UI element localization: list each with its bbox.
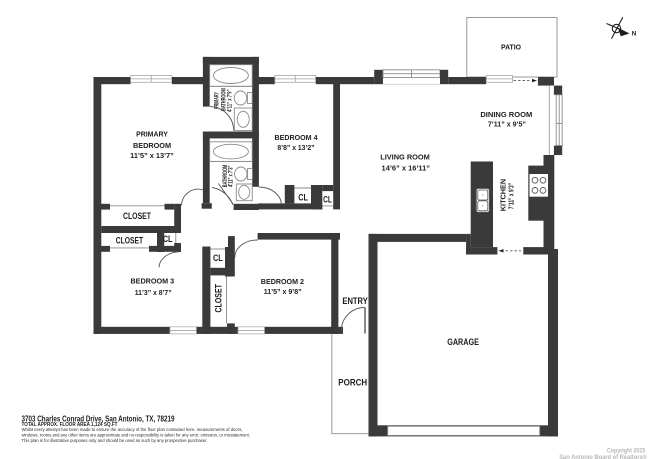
svg-text:BEDROOM 4: BEDROOM 4 xyxy=(274,133,318,142)
svg-text:windows, rooms and any other i: windows, rooms and any other items are a… xyxy=(22,433,251,438)
svg-text:This plan is for illustrative: This plan is for illustrative purposes o… xyxy=(22,438,208,443)
svg-text:PRIMARY: PRIMARY xyxy=(136,129,168,138)
svg-text:DINING ROOM: DINING ROOM xyxy=(480,110,532,119)
svg-text:BEDROOM: BEDROOM xyxy=(133,141,171,150)
svg-text:CLOSET: CLOSET xyxy=(123,211,151,221)
svg-text:11’3” x 8’7”: 11’3” x 8’7” xyxy=(135,288,172,297)
svg-text:PATIO: PATIO xyxy=(501,42,521,51)
svg-text:CLOSET: CLOSET xyxy=(116,235,144,245)
svg-text:San Antonio Board of Realtors®: San Antonio Board of Realtors® xyxy=(559,453,647,459)
svg-text:CL: CL xyxy=(298,193,308,203)
svg-text:11’5” x 9’8”: 11’5” x 9’8” xyxy=(264,287,302,296)
svg-text:Whilst every attempt has been: Whilst every attempt has been made to en… xyxy=(22,427,243,432)
svg-text:GARAGE: GARAGE xyxy=(447,337,479,348)
svg-text:14’6” x 16’11”: 14’6” x 16’11” xyxy=(382,164,431,173)
svg-text:CL: CL xyxy=(213,253,223,263)
svg-text:BEDROOM 3: BEDROOM 3 xyxy=(130,277,174,286)
svg-text:7’11” x 9’5”: 7’11” x 9’5” xyxy=(488,120,526,129)
svg-text:7’11” x 9’3”: 7’11” x 9’3” xyxy=(507,183,516,210)
svg-text:ENTRY: ENTRY xyxy=(342,296,368,307)
svg-text:N: N xyxy=(632,31,637,38)
svg-text:CL: CL xyxy=(163,234,173,244)
svg-text:4’11” x 7’9”: 4’11” x 7’9” xyxy=(226,89,233,112)
svg-text:BEDROOM 2: BEDROOM 2 xyxy=(261,277,304,286)
svg-text:4’11” x 7’3”: 4’11” x 7’3” xyxy=(228,166,235,188)
svg-text:8’8” x 13’2”: 8’8” x 13’2” xyxy=(277,143,314,152)
svg-text:CLOSET: CLOSET xyxy=(214,284,224,313)
svg-text:PORCH: PORCH xyxy=(338,378,367,389)
svg-text:CL: CL xyxy=(323,195,332,205)
svg-text:11’5” x 13’7”: 11’5” x 13’7” xyxy=(130,151,174,160)
svg-text:LIVING ROOM: LIVING ROOM xyxy=(380,153,430,162)
